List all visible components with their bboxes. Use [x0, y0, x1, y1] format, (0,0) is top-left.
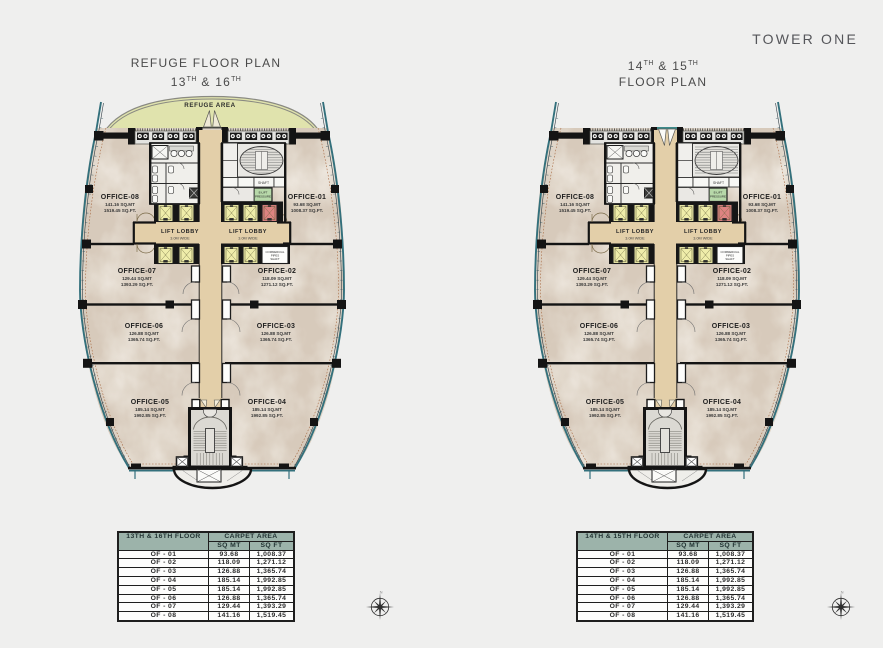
svg-text:1519.45 SQ.FT.: 1519.45 SQ.FT.: [559, 208, 591, 213]
svg-text:1271.12 SQ.FT.: 1271.12 SQ.FT.: [716, 282, 748, 287]
svg-text:126.88 SQ.MT: 126.88 SQ.MT: [261, 331, 291, 336]
svg-text:OFFICE-03: OFFICE-03: [712, 323, 750, 330]
svg-text:1992.85 SQ.FT.: 1992.85 SQ.FT.: [251, 413, 283, 418]
svg-text:141.16 SQ.MT: 141.16 SQ.MT: [560, 202, 590, 207]
svg-text:126.88 SQ.MT: 126.88 SQ.MT: [716, 331, 746, 336]
svg-text:OFFICE-02: OFFICE-02: [713, 268, 751, 275]
svg-text:OFFICE-05: OFFICE-05: [131, 399, 169, 406]
svg-text:118.09 SQ.MT: 118.09 SQ.MT: [262, 276, 292, 281]
svg-text:REFUGE AREA: REFUGE AREA: [184, 102, 235, 109]
svg-text:N: N: [380, 590, 383, 595]
svg-text:LIFT LOBBY: LIFT LOBBY: [684, 229, 722, 235]
svg-text:OFFICE-08: OFFICE-08: [556, 194, 594, 201]
svg-text:3.0M WIDE: 3.0M WIDE: [170, 237, 190, 241]
svg-text:141.16 SQ.MT: 141.16 SQ.MT: [105, 202, 135, 207]
svg-text:185.14 SQ.MT: 185.14 SQ.MT: [135, 407, 165, 412]
svg-text:SHAFT: SHAFT: [713, 181, 724, 185]
svg-text:126.88 SQ.MT: 126.88 SQ.MT: [129, 331, 159, 336]
svg-text:OFFICE-06: OFFICE-06: [580, 323, 618, 330]
svg-text:OFFICE-04: OFFICE-04: [248, 399, 286, 406]
svg-text:PRESSURE: PRESSURE: [710, 194, 726, 198]
svg-text:OFFICE-05: OFFICE-05: [586, 399, 624, 406]
svg-text:OFFICE-08: OFFICE-08: [101, 194, 139, 201]
svg-text:185.14 SQ.MT: 185.14 SQ.MT: [252, 407, 282, 412]
svg-text:OFFICE-01: OFFICE-01: [743, 194, 781, 201]
svg-text:129.44 SQ.MT: 129.44 SQ.MT: [122, 276, 152, 281]
svg-text:OFFICE-07: OFFICE-07: [573, 268, 611, 275]
svg-text:1393.29 SQ.FT.: 1393.29 SQ.FT.: [121, 282, 153, 287]
svg-text:3.0M WIDE: 3.0M WIDE: [238, 237, 258, 241]
svg-text:1365.74 SQ.FT.: 1365.74 SQ.FT.: [260, 337, 292, 342]
svg-text:OFFICE-07: OFFICE-07: [118, 268, 156, 275]
svg-text:1271.12 SQ.FT.: 1271.12 SQ.FT.: [261, 282, 293, 287]
svg-text:1393.29 SQ.FT.: 1393.29 SQ.FT.: [576, 282, 608, 287]
svg-text:126.88 SQ.MT: 126.88 SQ.MT: [584, 331, 614, 336]
svg-text:LIFT LOBBY: LIFT LOBBY: [229, 229, 267, 235]
svg-text:SHAFT: SHAFT: [270, 257, 279, 261]
svg-text:1365.74 SQ.FT.: 1365.74 SQ.FT.: [583, 337, 615, 342]
svg-text:93.68 SQ.MT: 93.68 SQ.MT: [293, 202, 321, 207]
svg-text:93.68 SQ.MT: 93.68 SQ.MT: [748, 202, 776, 207]
svg-text:LIFT LOBBY: LIFT LOBBY: [616, 229, 654, 235]
svg-text:SHAFT: SHAFT: [258, 181, 269, 185]
svg-text:1365.74 SQ.FT.: 1365.74 SQ.FT.: [715, 337, 747, 342]
svg-text:185.14 SQ.MT: 185.14 SQ.MT: [707, 407, 737, 412]
svg-text:185.14 SQ.MT: 185.14 SQ.MT: [590, 407, 620, 412]
svg-text:OFFICE-01: OFFICE-01: [288, 194, 326, 201]
svg-text:LIFT LOBBY: LIFT LOBBY: [161, 229, 199, 235]
svg-text:1008.37 SQ.FT.: 1008.37 SQ.FT.: [746, 208, 778, 213]
svg-text:3.0M WIDE: 3.0M WIDE: [625, 237, 645, 241]
svg-text:1008.37 SQ.FT.: 1008.37 SQ.FT.: [291, 208, 323, 213]
svg-text:118.09 SQ.MT: 118.09 SQ.MT: [717, 276, 747, 281]
svg-text:1365.74 SQ.FT.: 1365.74 SQ.FT.: [128, 337, 160, 342]
svg-text:1992.85 SQ.FT.: 1992.85 SQ.FT.: [134, 413, 166, 418]
svg-text:OFFICE-02: OFFICE-02: [258, 268, 296, 275]
svg-text:SHAFT: SHAFT: [725, 257, 734, 261]
svg-text:3.0M WIDE: 3.0M WIDE: [693, 237, 713, 241]
svg-text:OFFICE-04: OFFICE-04: [703, 399, 741, 406]
svg-text:OFFICE-03: OFFICE-03: [257, 323, 295, 330]
svg-text:N: N: [841, 590, 844, 595]
svg-text:1992.85 SQ.FT.: 1992.85 SQ.FT.: [706, 413, 738, 418]
svg-text:PRESSURE: PRESSURE: [255, 194, 271, 198]
svg-text:OFFICE-06: OFFICE-06: [125, 323, 163, 330]
svg-text:129.44 SQ.MT: 129.44 SQ.MT: [577, 276, 607, 281]
svg-text:1519.45 SQ.FT.: 1519.45 SQ.FT.: [104, 208, 136, 213]
svg-text:1992.85 SQ.FT.: 1992.85 SQ.FT.: [589, 413, 621, 418]
